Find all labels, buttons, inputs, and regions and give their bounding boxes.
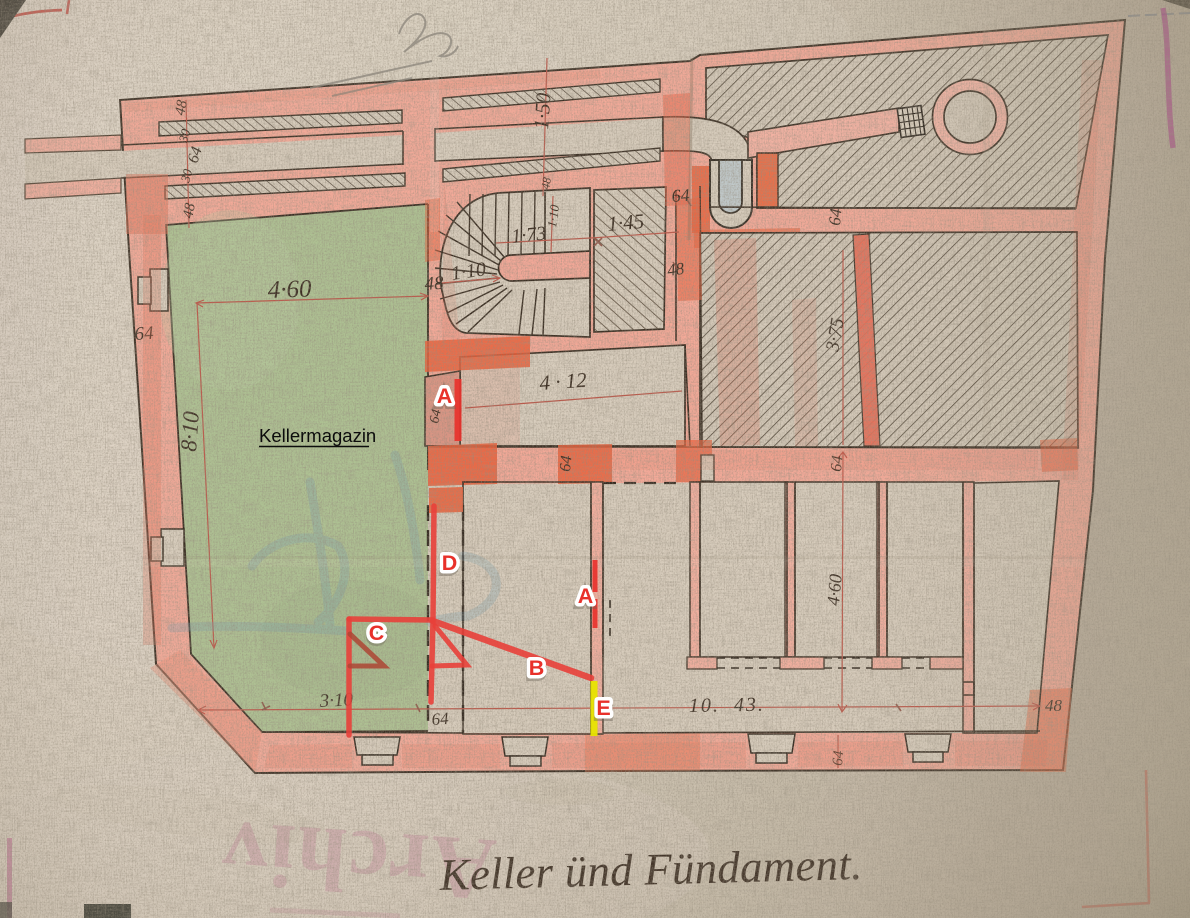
svg-text:A: A xyxy=(437,384,453,408)
svg-text:B: B xyxy=(529,656,545,680)
svg-text:E: E xyxy=(596,696,610,720)
svg-text:Kellermagazin: Kellermagazin xyxy=(259,425,376,446)
svg-text:D: D xyxy=(442,551,458,575)
svg-text:C: C xyxy=(369,621,385,645)
svg-text:A: A xyxy=(578,584,594,608)
